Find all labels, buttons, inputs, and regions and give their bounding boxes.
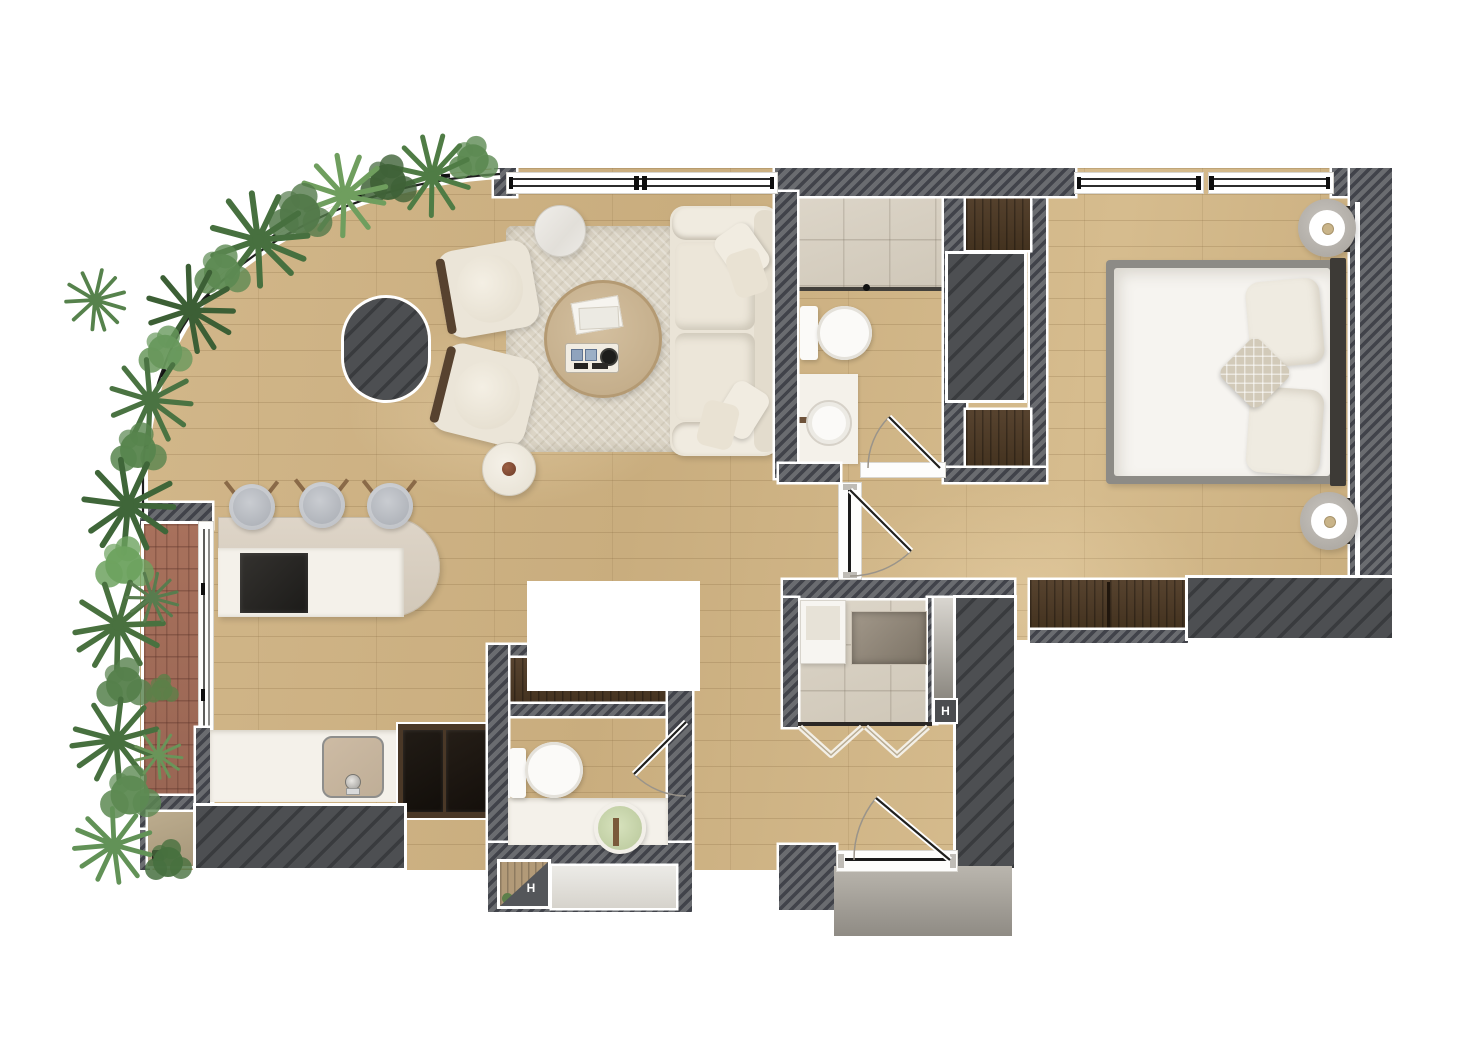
- appliance-cabinet: [398, 724, 492, 818]
- lamp-finial: [1322, 223, 1334, 235]
- shower-glass-clamp: [863, 284, 870, 291]
- wc-faucet: [613, 818, 619, 846]
- tray: [565, 343, 619, 373]
- wall-wc-left: [488, 645, 508, 872]
- window-mullion: [1326, 177, 1330, 189]
- bathroom-shower-floor: [797, 193, 945, 290]
- wc-basin: [594, 802, 646, 854]
- wall-right-gap: [1355, 202, 1360, 614]
- window-mullion: [509, 177, 513, 189]
- stool-seat: [299, 482, 345, 528]
- vanity-basin: [806, 400, 852, 446]
- shaft-marker: H: [935, 700, 956, 722]
- door-line: [848, 490, 851, 572]
- service-column: [956, 598, 1014, 868]
- appliance-door: [403, 730, 443, 812]
- appliance-door: [446, 730, 487, 812]
- wall-top-middle: [775, 168, 1075, 196]
- shaft-marker-label: H: [941, 704, 950, 718]
- bar-stool: [362, 477, 418, 533]
- wall-bathroom-bottom-stub: [779, 464, 840, 482]
- bar-stool: [224, 478, 280, 534]
- armchair-cushion: [447, 355, 527, 437]
- cooktop: [240, 553, 308, 613]
- lamp-finial: [1324, 516, 1336, 528]
- dresser-split: [1107, 582, 1110, 628]
- magazines: [578, 306, 619, 330]
- shower-cabinet: [800, 600, 846, 664]
- wall-shower-top: [783, 580, 1014, 598]
- window-mullion: [770, 177, 774, 189]
- bedroom-dresser: [1030, 580, 1188, 630]
- armchair-cushion: [452, 249, 529, 327]
- closet: [966, 410, 1030, 470]
- window-mullion: [1196, 176, 1201, 190]
- wall-entry-corner: [779, 845, 836, 910]
- window-mullion: [1209, 176, 1214, 190]
- toilet: [510, 748, 526, 798]
- wall-wc-mid: [506, 704, 672, 716]
- column-hatched: [344, 298, 428, 400]
- nightstand-lamp: [1298, 199, 1356, 257]
- stool-seat: [367, 483, 413, 529]
- kitchen-sink: [322, 736, 384, 798]
- outside-area-bottom-right: [1014, 640, 1462, 1061]
- bedroom-window-left: [1074, 172, 1204, 194]
- door-hinge: [950, 854, 956, 868]
- shaft-marker-label: H: [527, 881, 536, 895]
- door-handle: [201, 689, 205, 701]
- entry-door-frame: [836, 850, 958, 872]
- blank-overlay: [527, 581, 700, 691]
- shower-glass-divider: [797, 287, 945, 291]
- tray-item: [571, 349, 583, 361]
- cabinet-inner: [806, 606, 840, 640]
- living-room-window: [506, 172, 778, 194]
- window-glass-line: [1214, 185, 1328, 187]
- floor-plan-canvas: H H: [0, 0, 1462, 1061]
- entry-doormat: [834, 866, 1012, 936]
- side-stool: [482, 442, 536, 496]
- bedroom-window-right: [1208, 172, 1334, 194]
- balcony-deck: [144, 524, 198, 798]
- coffee-table: [544, 280, 662, 398]
- window-glass-line: [1214, 178, 1328, 180]
- armchair: [434, 238, 542, 341]
- toilet: [800, 306, 818, 360]
- wall-bathroom-left: [775, 192, 797, 478]
- double-bed: [1106, 260, 1344, 484]
- strip-structural-block: [948, 254, 1024, 400]
- toilet-bowl: [525, 742, 583, 798]
- bathroom-door-frame: [860, 462, 946, 478]
- wall-strip-right: [1030, 180, 1046, 480]
- headboard: [1330, 258, 1346, 486]
- window-mullion: [1077, 177, 1081, 189]
- niche-object: [152, 850, 164, 861]
- kitchen-niche: [148, 812, 196, 866]
- kitchen-wall-block: [196, 806, 404, 868]
- counter-wall-stub: [196, 728, 210, 804]
- window-mullion: [642, 176, 647, 190]
- door-threshold-line: [845, 858, 949, 861]
- closet: [966, 190, 1030, 250]
- door-hinge: [843, 572, 857, 578]
- door-hinge: [838, 854, 844, 868]
- tray-item: [585, 349, 597, 361]
- faucet: [346, 788, 360, 795]
- nightstand-lamp: [1300, 492, 1358, 550]
- shower-tray: [852, 612, 926, 664]
- toilet-bowl: [817, 306, 872, 360]
- wall-under-dresser: [1030, 630, 1188, 643]
- hall-door-frame: [838, 482, 862, 580]
- bedroom-wall-block: [1188, 578, 1392, 638]
- exterior-ledge: [552, 866, 676, 908]
- remote: [592, 363, 608, 369]
- marble-side-table: [534, 205, 586, 257]
- bar-stool: [294, 476, 350, 532]
- wall-strip-bottom: [944, 468, 1046, 482]
- wall-shower-left: [783, 598, 798, 727]
- sofa: [670, 206, 778, 456]
- remote: [574, 363, 588, 369]
- stool-seat: [229, 484, 275, 530]
- decor-ball: [502, 462, 516, 476]
- door-hinge: [843, 484, 857, 490]
- shaft-triangle: H: [500, 862, 548, 906]
- shaft-niche: H: [500, 862, 548, 906]
- door-handle: [201, 583, 205, 595]
- window-glass-line: [1080, 178, 1198, 180]
- window-glass-line: [1080, 185, 1198, 187]
- window-mullion: [634, 176, 639, 190]
